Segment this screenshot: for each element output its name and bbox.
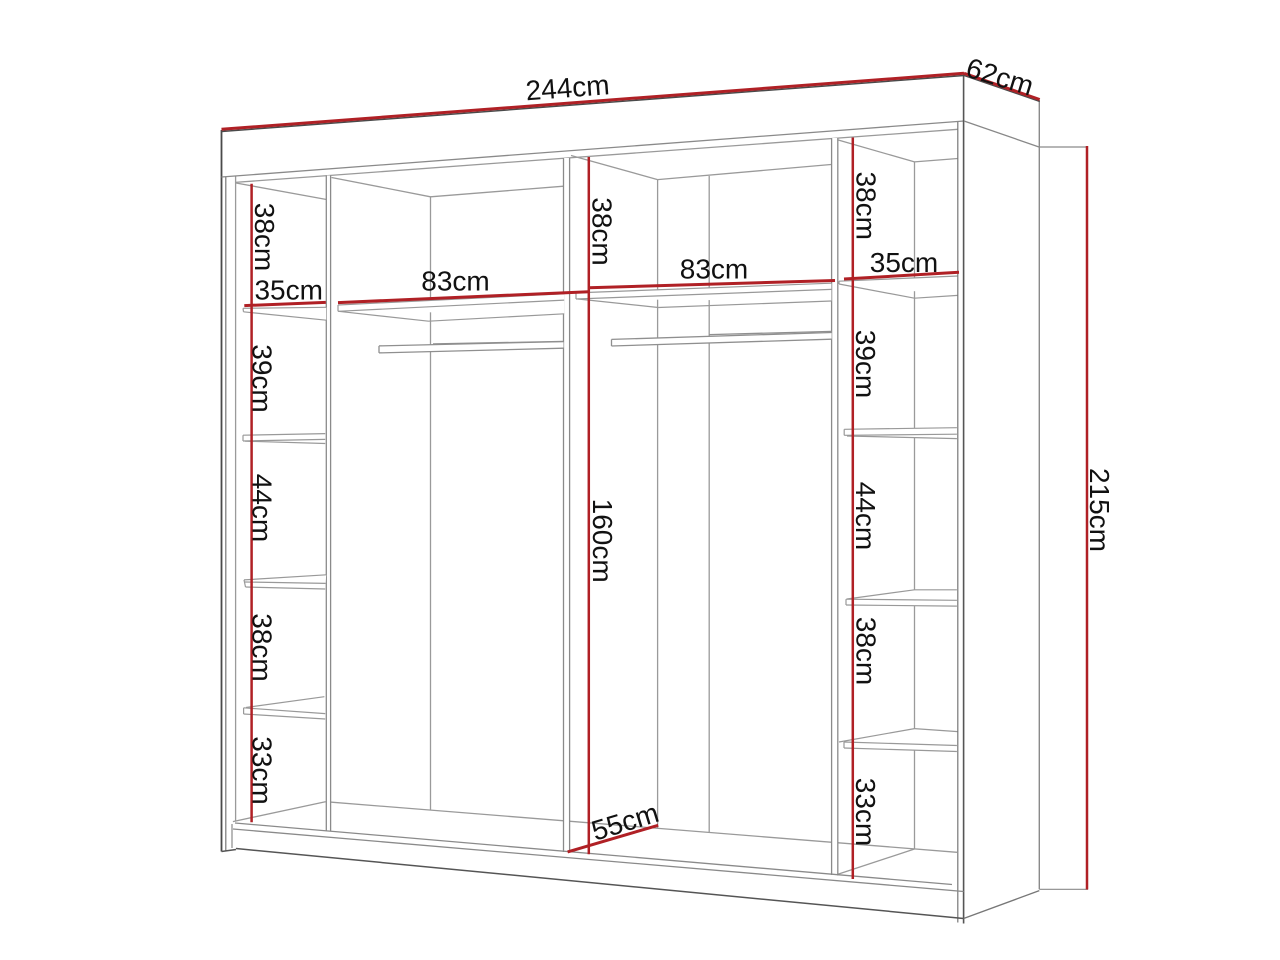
svg-text:38cm: 38cm (587, 197, 618, 265)
svg-text:215cm: 215cm (1084, 468, 1115, 552)
svg-text:83cm: 83cm (421, 265, 489, 296)
svg-text:33cm: 33cm (850, 778, 881, 846)
svg-text:35cm: 35cm (254, 274, 322, 305)
svg-text:38cm: 38cm (851, 171, 882, 239)
svg-text:35cm: 35cm (870, 247, 938, 278)
svg-text:38cm: 38cm (851, 617, 882, 685)
svg-text:38cm: 38cm (247, 613, 278, 681)
svg-text:160cm: 160cm (587, 499, 618, 583)
svg-text:38cm: 38cm (249, 203, 280, 271)
svg-text:33cm: 33cm (247, 736, 278, 804)
svg-text:39cm: 39cm (247, 344, 278, 412)
svg-text:44cm: 44cm (247, 474, 278, 542)
svg-text:44cm: 44cm (850, 482, 881, 550)
svg-text:39cm: 39cm (850, 330, 881, 398)
svg-text:83cm: 83cm (680, 254, 748, 285)
svg-text:244cm: 244cm (524, 69, 610, 106)
